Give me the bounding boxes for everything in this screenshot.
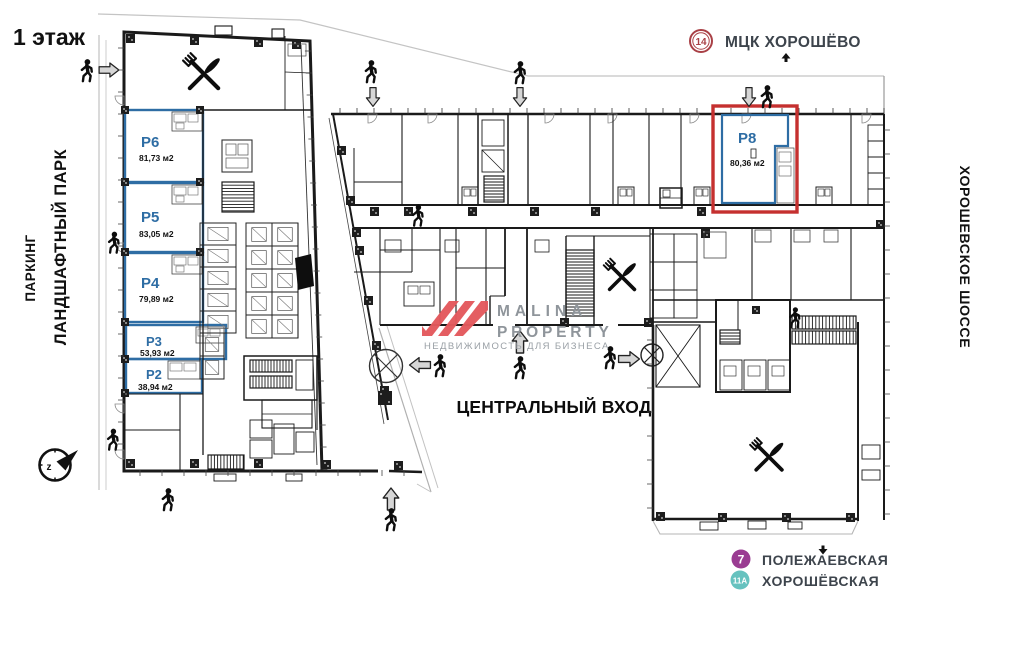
svg-text:P8: P8 bbox=[738, 130, 756, 147]
svg-text:ЛАНДШАФТНЫЙ ПАРК: ЛАНДШАФТНЫЙ ПАРК bbox=[51, 149, 70, 346]
svg-text:53,93 м2: 53,93 м2 bbox=[140, 348, 175, 358]
svg-text:MALINA: MALINA bbox=[497, 303, 587, 320]
svg-text:81,73 м2: 81,73 м2 bbox=[139, 153, 174, 163]
svg-text:83,05 м2: 83,05 м2 bbox=[139, 229, 174, 239]
svg-text:P2: P2 bbox=[146, 367, 162, 382]
svg-text:МЦК ХОРОШЁВО: МЦК ХОРОШЁВО bbox=[725, 34, 861, 51]
svg-text:11А: 11А bbox=[733, 577, 747, 586]
svg-text:80,36 м2: 80,36 м2 bbox=[730, 158, 765, 168]
svg-text:ХОРОШЁВСКАЯ: ХОРОШЁВСКАЯ bbox=[762, 573, 879, 589]
svg-text:PROPERTY: PROPERTY bbox=[497, 324, 613, 341]
svg-text:P6: P6 bbox=[141, 134, 159, 151]
svg-text:z: z bbox=[47, 462, 52, 473]
svg-text:P5: P5 bbox=[141, 209, 159, 226]
svg-text:P3: P3 bbox=[146, 334, 162, 349]
svg-text:7: 7 bbox=[738, 553, 745, 567]
svg-text:ПОЛЕЖАЕВСКАЯ: ПОЛЕЖАЕВСКАЯ bbox=[762, 552, 888, 568]
svg-text:1 этаж: 1 этаж bbox=[13, 24, 86, 50]
svg-text:P4: P4 bbox=[141, 275, 160, 292]
svg-text:ПАРКИНГ: ПАРКИНГ bbox=[23, 234, 38, 301]
svg-text:38,94 м2: 38,94 м2 bbox=[138, 382, 173, 392]
svg-text:79,89 м2: 79,89 м2 bbox=[139, 294, 174, 304]
svg-text:ХОРОШЕВСКОЕ ШОССЕ: ХОРОШЕВСКОЕ ШОССЕ bbox=[956, 166, 972, 349]
svg-text:14: 14 bbox=[695, 37, 707, 48]
svg-text:НЕДВИЖИМОСТЬ ДЛЯ БИЗНЕСА: НЕДВИЖИМОСТЬ ДЛЯ БИЗНЕСА bbox=[424, 341, 610, 352]
svg-text:ЦЕНТРАЛЬНЫЙ ВХОД: ЦЕНТРАЛЬНЫЙ ВХОД bbox=[456, 396, 651, 417]
